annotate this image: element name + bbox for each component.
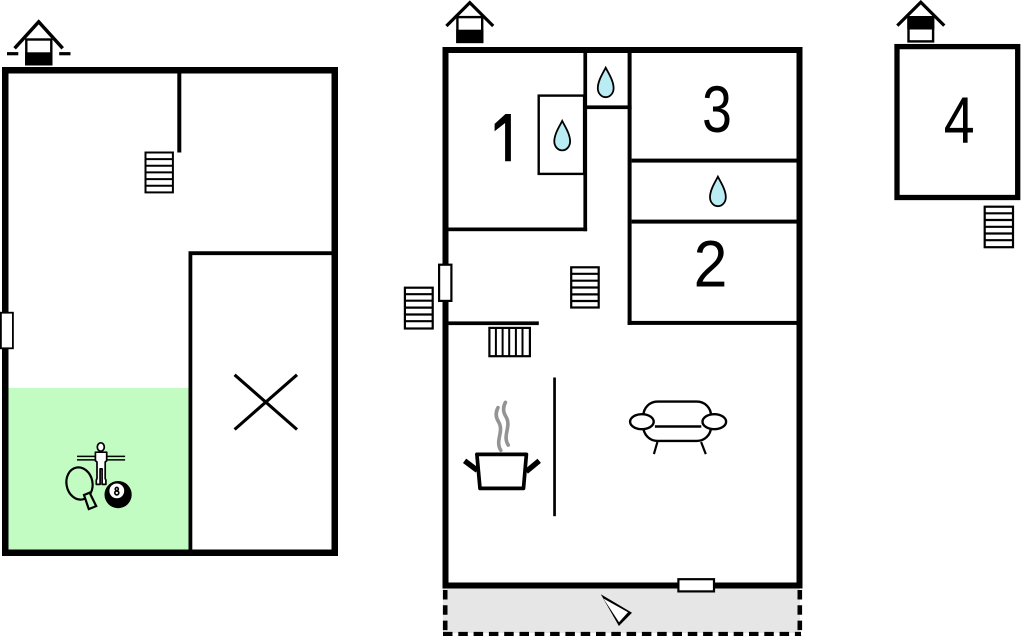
svg-text:4: 4 bbox=[944, 83, 975, 157]
svg-text:3: 3 bbox=[702, 73, 732, 147]
svg-text:2: 2 bbox=[694, 228, 728, 301]
